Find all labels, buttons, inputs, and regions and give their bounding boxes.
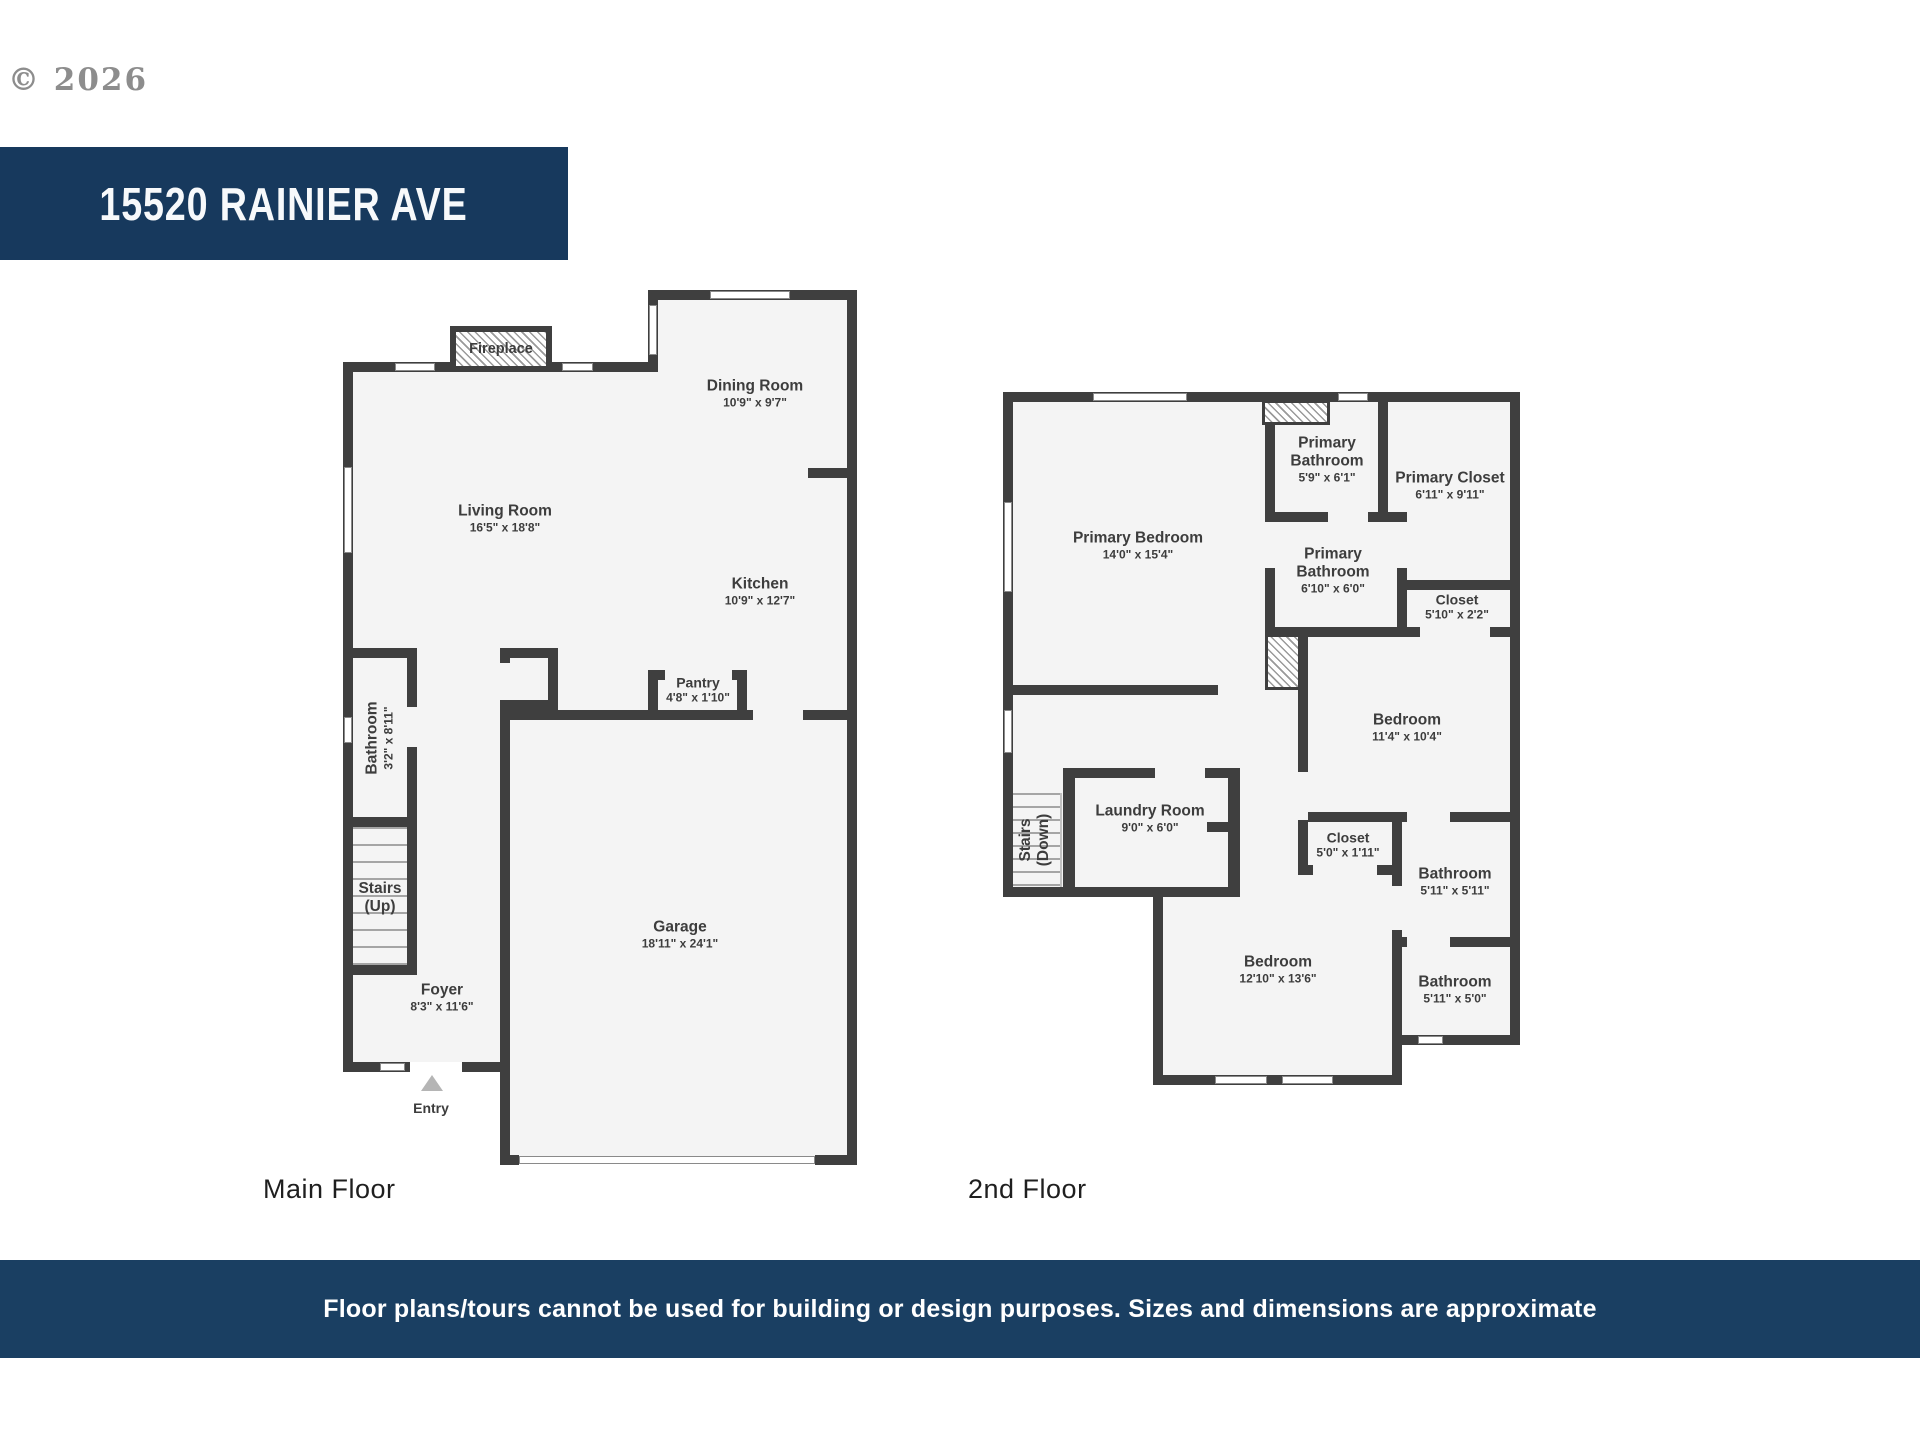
wall bbox=[815, 1155, 857, 1165]
window bbox=[395, 363, 435, 371]
wall bbox=[808, 468, 857, 478]
address-banner: 15520 RAINIER AVE bbox=[0, 147, 568, 260]
door-opening bbox=[1407, 812, 1450, 822]
room-label-laundry: Laundry Room 9'0" x 6'0" bbox=[1095, 803, 1204, 836]
window bbox=[649, 305, 657, 355]
window bbox=[1215, 1076, 1267, 1084]
door-opening bbox=[1392, 886, 1402, 930]
floor-area bbox=[1240, 690, 1305, 895]
room-label-primary-closet: Primary Closet 6'11" x 9'11" bbox=[1395, 470, 1504, 503]
room-label-closet-2: Closet 5'0" x 1'11" bbox=[1316, 830, 1379, 861]
wall bbox=[648, 670, 658, 720]
window bbox=[1282, 1076, 1333, 1084]
wall bbox=[1003, 392, 1013, 897]
door-opening bbox=[407, 707, 417, 747]
room-label-bedroom-2: Bedroom 12'10" x 13'6" bbox=[1239, 954, 1316, 987]
room-label-entry: Entry bbox=[413, 1100, 449, 1116]
fireplace-label: Fireplace bbox=[469, 341, 533, 357]
room-label-pantry: Pantry 4'8" x 1'10" bbox=[666, 675, 730, 706]
garage-door bbox=[519, 1156, 815, 1164]
door-opening bbox=[500, 663, 510, 700]
room-label-dining: Dining Room 10'9" x 9'7" bbox=[707, 378, 803, 411]
wall bbox=[1392, 1035, 1402, 1085]
wall bbox=[1392, 1035, 1520, 1045]
wall bbox=[343, 648, 417, 658]
wall bbox=[1003, 887, 1240, 897]
disclaimer-bar: Floor plans/tours cannot be used for bui… bbox=[0, 1260, 1920, 1358]
room-label-bathroom-1: Bathroom 5'11" x 5'11" bbox=[1418, 866, 1491, 899]
room-label-living: Living Room 16'5" x 18'8" bbox=[458, 503, 552, 536]
entry-door-opening bbox=[410, 1062, 462, 1072]
wall bbox=[737, 670, 747, 720]
disclaimer-text: Floor plans/tours cannot be used for bui… bbox=[323, 1295, 1596, 1324]
wall bbox=[1153, 1075, 1402, 1085]
wall bbox=[1063, 768, 1240, 778]
wall bbox=[1063, 768, 1075, 887]
door-opening bbox=[1397, 522, 1407, 568]
copyright-text: © 2026 bbox=[8, 62, 148, 98]
window bbox=[344, 717, 352, 743]
wall bbox=[1153, 887, 1163, 1085]
chase-hatch bbox=[1262, 400, 1330, 425]
window bbox=[1418, 1036, 1443, 1044]
door-opening bbox=[1265, 522, 1275, 568]
room-label-bathroom: Bathroom 3'2" x 8'11" bbox=[364, 701, 397, 774]
wall bbox=[1228, 768, 1240, 887]
entry-arrow-icon bbox=[421, 1075, 443, 1091]
wall bbox=[1378, 392, 1388, 512]
wall bbox=[1510, 392, 1520, 1045]
door-opening bbox=[1298, 772, 1308, 820]
room-label-closet-1: Closet 5'10" x 2'2" bbox=[1425, 592, 1489, 623]
door-opening bbox=[1420, 627, 1490, 637]
address-text: 15520 RAINIER AVE bbox=[100, 177, 468, 231]
room-label-stairs-down: Stairs (Down) bbox=[1017, 814, 1053, 867]
floor-area bbox=[652, 295, 852, 715]
door-opening bbox=[1328, 512, 1368, 522]
wall bbox=[1207, 822, 1228, 832]
room-label-foyer: Foyer 8'3" x 11'6" bbox=[410, 982, 473, 1015]
room-label-kitchen: Kitchen 10'9" x 12'7" bbox=[725, 576, 795, 609]
floor-plan-page: © 2026 15520 RAINIER AVE bbox=[0, 0, 1920, 1440]
door-opening bbox=[1313, 865, 1377, 875]
wall bbox=[500, 710, 857, 720]
chase-hatch bbox=[1265, 634, 1301, 690]
room-label-primary-bathroom-2: Primary Bathroom 6'10" x 6'0" bbox=[1283, 546, 1383, 597]
door-opening bbox=[1407, 937, 1450, 947]
room-label-stairs-up: Stairs (Up) bbox=[358, 880, 401, 916]
room-label-bathroom-2: Bathroom 5'11" x 5'0" bbox=[1418, 974, 1491, 1007]
door-opening bbox=[753, 710, 803, 720]
room-label-primary-bedroom: Primary Bedroom 14'0" x 15'4" bbox=[1073, 530, 1203, 563]
second-floor-label: 2nd Floor bbox=[968, 1174, 1087, 1205]
window bbox=[710, 291, 790, 299]
wall bbox=[500, 710, 510, 1165]
door-opening bbox=[1218, 685, 1265, 695]
window bbox=[1004, 710, 1012, 753]
wall bbox=[500, 1155, 519, 1165]
window bbox=[344, 467, 352, 553]
window bbox=[380, 1063, 405, 1071]
main-floor-label: Main Floor bbox=[263, 1174, 396, 1205]
wall bbox=[1392, 947, 1402, 1035]
room-label-primary-bathroom-1: Primary Bathroom 5'9" x 6'1" bbox=[1277, 435, 1377, 486]
wall bbox=[343, 965, 417, 975]
window bbox=[1338, 393, 1368, 401]
window bbox=[1093, 393, 1187, 401]
window bbox=[1004, 502, 1012, 592]
window bbox=[562, 363, 593, 371]
room-label-garage: Garage 18'11" x 24'1" bbox=[642, 919, 718, 952]
wall bbox=[407, 648, 417, 975]
wall bbox=[847, 290, 857, 1165]
wall bbox=[343, 817, 417, 827]
wall bbox=[1397, 580, 1510, 590]
door-opening bbox=[1155, 768, 1205, 778]
room-label-bedroom-1: Bedroom 11'4" x 10'4" bbox=[1372, 712, 1442, 745]
